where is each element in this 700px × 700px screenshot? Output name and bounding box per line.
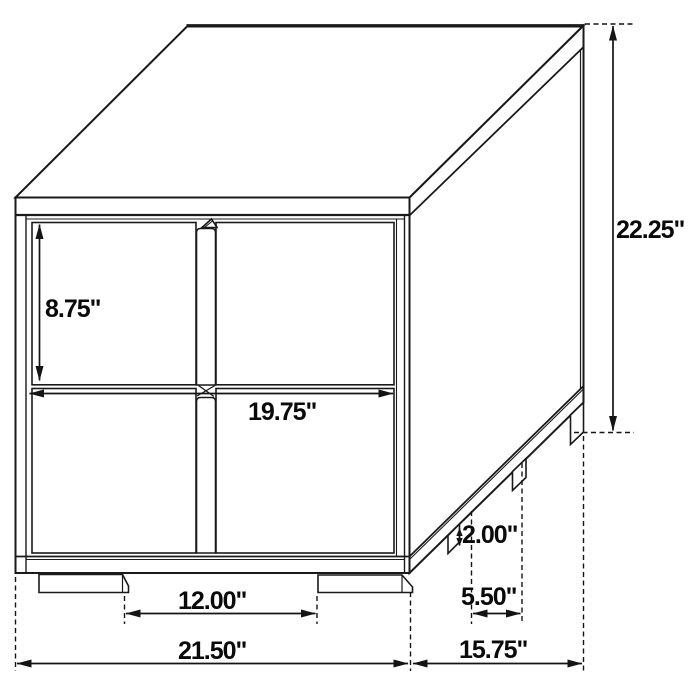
- drawer-front-lower-left: [32, 389, 196, 554]
- dimension-label-overall-depth: 15.75": [459, 636, 528, 664]
- dimension-label-overall-width: 21.50": [178, 637, 247, 665]
- front-leg-right: [318, 575, 413, 593]
- dimension-label-drawer-width: 19.75": [248, 398, 317, 426]
- dimension-label-leg-height: 2.00": [462, 521, 518, 549]
- dimension-diagram: 8.75" 19.75" 22.25" 2.00" 5.50" 12.00" 2…: [0, 0, 700, 700]
- handle-strip-upper: [197, 229, 216, 386]
- dimension-label-overall-height: 22.25": [616, 216, 685, 244]
- dimension-label-drawer-height: 8.75": [45, 295, 101, 323]
- dimension-label-side-leg-spacing: 5.50": [461, 583, 517, 611]
- nightstand-drawing: 8.75" 19.75" 22.25" 2.00" 5.50" 12.00" 2…: [0, 0, 700, 700]
- drawer-front-upper-right: [216, 223, 394, 385]
- front-leg-left: [39, 575, 129, 593]
- cabinet-body: [16, 26, 584, 593]
- dimension-label-front-leg-spacing: 12.00": [178, 587, 247, 615]
- handle-strip-lower: [197, 398, 216, 554]
